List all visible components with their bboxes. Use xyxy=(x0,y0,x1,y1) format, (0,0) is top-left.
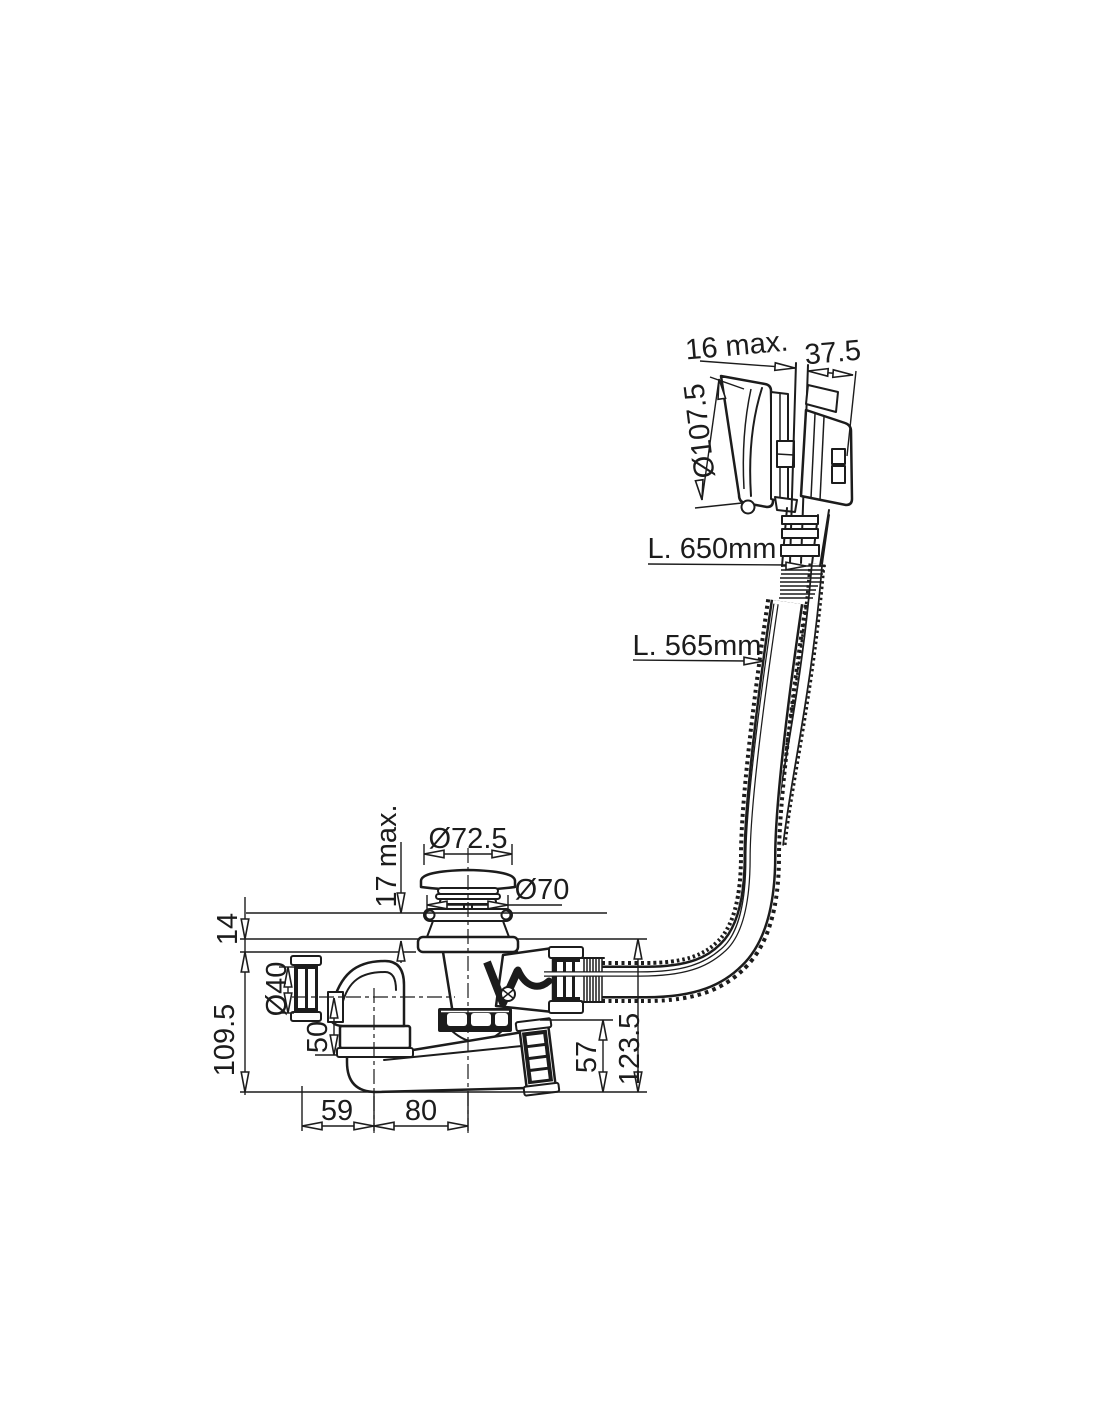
dim-waste-offset-label: 80 xyxy=(405,1095,437,1127)
adjuster-ring xyxy=(782,516,818,524)
dim-cable-length-label: L. 650mm xyxy=(648,533,777,565)
dim-overflow-projection-label: 37.5 xyxy=(803,335,862,372)
hose-nut xyxy=(549,947,583,1013)
dim-outlet-drop-label: 50 xyxy=(302,1021,334,1053)
outlet-nut-40 xyxy=(291,956,321,1021)
dim-outlet-diameter-label: Ø40 xyxy=(261,962,293,1017)
dim-rim-thickness-label: 17 max. xyxy=(371,804,403,907)
dim-body-depth-label: 109.5 xyxy=(209,1004,241,1077)
cap-lip xyxy=(742,501,755,514)
dim-pipe-height-label: 57 xyxy=(571,1041,603,1073)
dim-plug-diameter-label: Ø72.5 xyxy=(429,823,508,855)
technical-drawing: 16 max. 37.5 Ø107.5 L. 650mm L. 565mm Ø7… xyxy=(0,0,1100,1422)
drawing-canvas: 16 max. 37.5 Ø107.5 L. 650mm L. 565mm Ø7… xyxy=(0,0,1100,1422)
dim-flange-height-label: 14 xyxy=(212,913,244,945)
strainer xyxy=(438,1008,512,1032)
dim-hose-length-label: L. 565mm xyxy=(633,630,762,662)
background xyxy=(0,0,1100,1422)
elbow-collar xyxy=(340,1026,410,1048)
adjuster-ring xyxy=(782,529,818,538)
dim-total-depth-label: 123.5 xyxy=(614,1013,646,1086)
dim-elbow-offset-label: 59 xyxy=(321,1095,353,1127)
locknut-ring xyxy=(781,545,819,556)
dim-waste-flange-diameter-label: Ø70 xyxy=(515,874,570,906)
